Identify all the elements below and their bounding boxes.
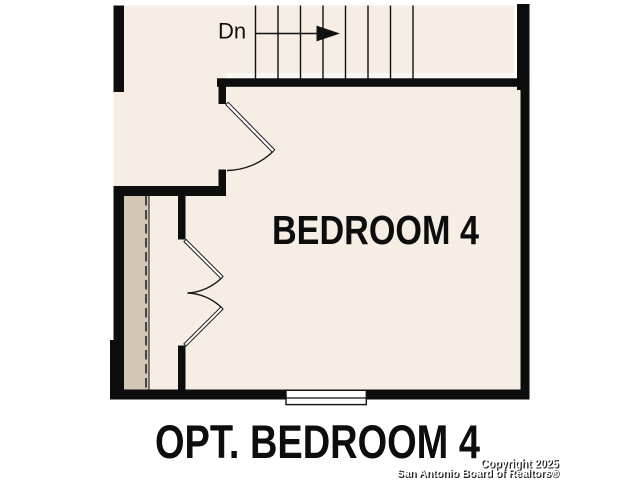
svg-text:Dn: Dn [218,19,246,44]
svg-text:San Antonio Board of Realtors®: San Antonio Board of Realtors® [397,468,560,480]
svg-text:BEDROOM 4: BEDROOM 4 [272,207,479,253]
svg-text:OPT. BEDROOM 4: OPT. BEDROOM 4 [155,415,480,468]
